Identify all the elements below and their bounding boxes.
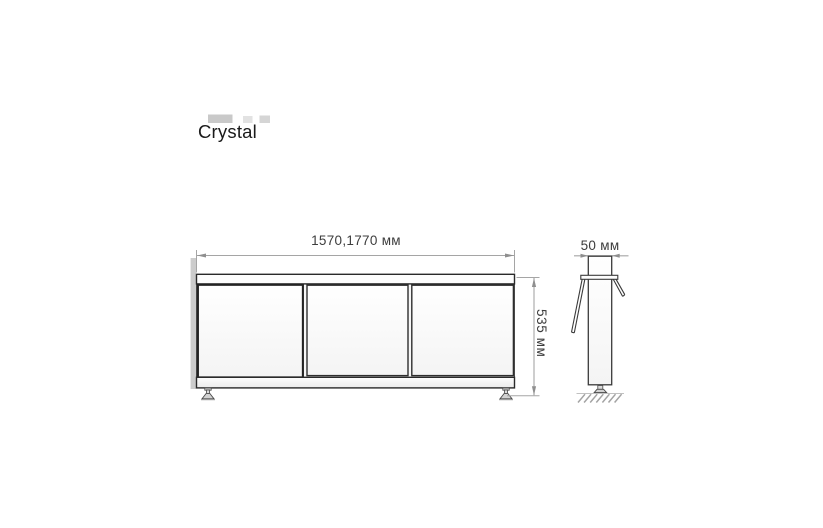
height-dimension-label: 535 мм <box>534 309 549 357</box>
arrowhead-left <box>197 254 206 258</box>
adjustable-foot-right <box>499 388 513 400</box>
width-dimension <box>197 250 515 273</box>
drawing-linework <box>0 0 823 528</box>
panel-middle <box>307 285 408 375</box>
side-foot <box>594 386 606 393</box>
adjustable-foot-left <box>201 388 215 400</box>
side-view <box>572 254 629 403</box>
bottom-rail <box>197 377 515 388</box>
top-rail <box>197 274 515 284</box>
depth-dimension-label: 50 мм <box>568 238 632 253</box>
arrowhead-left <box>612 254 620 258</box>
left-edge-shadow <box>191 258 196 389</box>
product-dimension-drawing: Crystal 1570,1770 мм 535 мм 50 мм <box>0 0 823 528</box>
front-view <box>191 258 515 400</box>
arrowhead-right <box>505 254 514 258</box>
panel-right <box>412 285 514 375</box>
product-title: Crystal <box>198 121 257 143</box>
artifact-block <box>260 116 271 124</box>
arrowhead-up <box>532 278 536 287</box>
arrowhead-down <box>532 386 536 395</box>
arrowhead-right <box>581 254 589 258</box>
panel-left <box>198 285 303 378</box>
width-dimension-label: 1570,1770 мм <box>270 233 442 248</box>
ground-hatching <box>577 394 625 403</box>
